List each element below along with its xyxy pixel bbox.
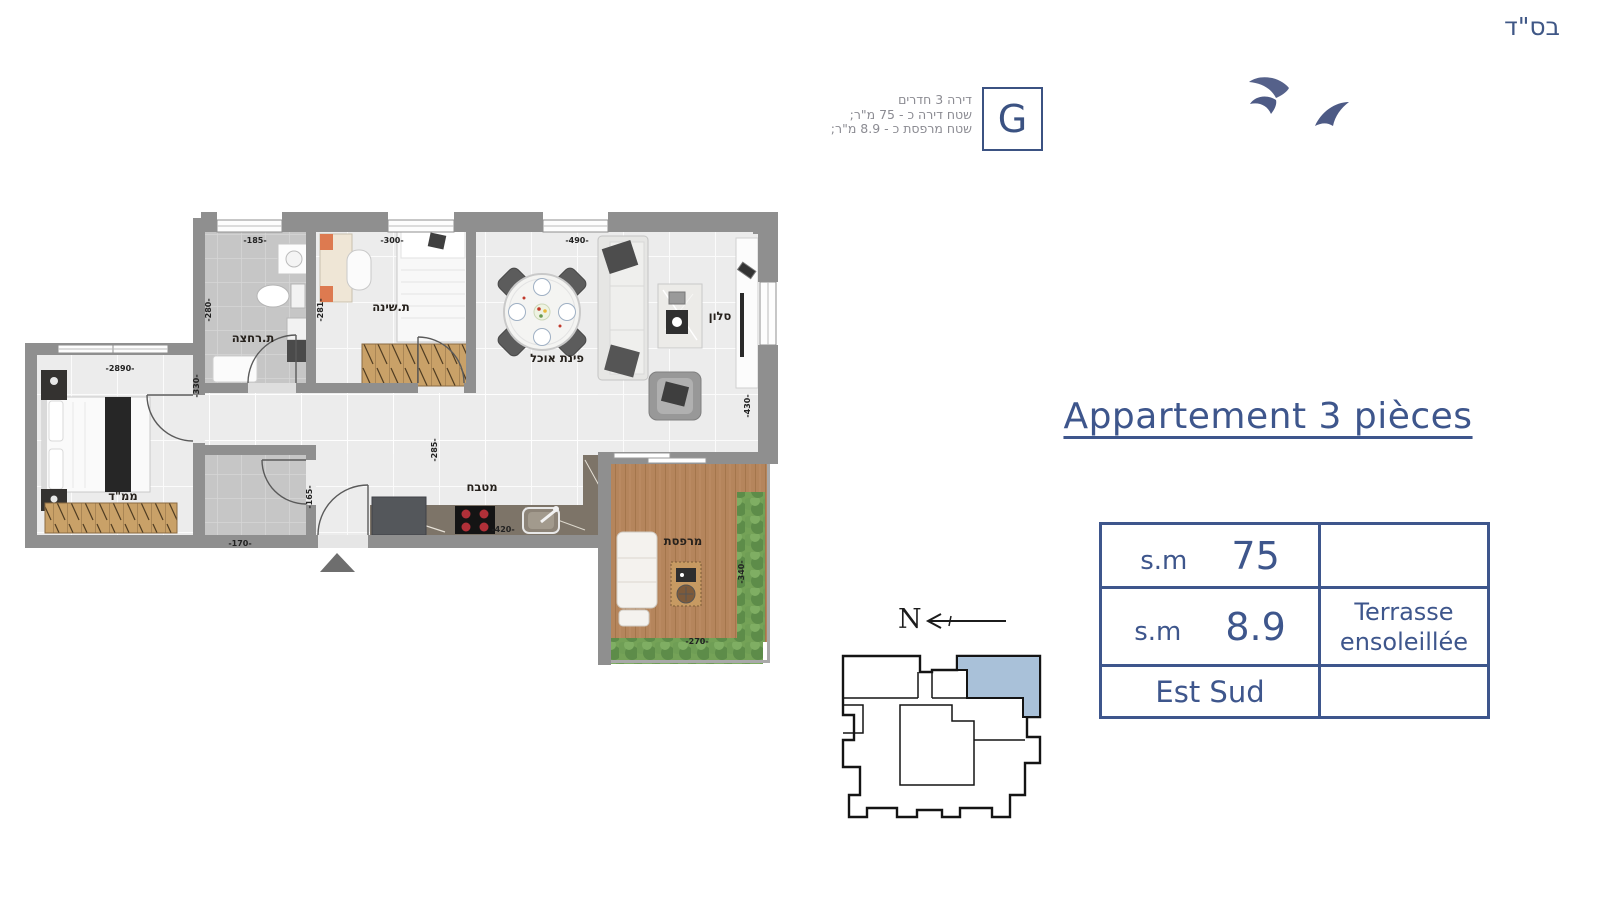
terrace-note-line2: ensoleillée (1321, 627, 1487, 657)
orientation-value: Est Sud (1102, 675, 1318, 709)
window (217, 220, 282, 232)
salon-sofa (598, 236, 648, 380)
refrigerator (372, 497, 426, 535)
window (543, 220, 608, 232)
room-label-kitchen: מטבח (466, 480, 497, 494)
page-title: Appartement 3 pièces (1042, 396, 1494, 437)
room-label-shelter-bedroom: ממ"ד (108, 489, 137, 503)
master-wardrobe (45, 503, 177, 533)
unit-letter: G (998, 97, 1027, 141)
apartment-area-value: 75 (1231, 534, 1279, 578)
room-label-bathroom: ת.רחצה (232, 331, 274, 345)
bird-icon (1250, 97, 1276, 114)
dimension-label: -285- (430, 438, 439, 461)
unit-info-line3: שטח מרפסת כ - 8.9 מ"ר; (790, 122, 972, 137)
tv-console (736, 238, 758, 388)
dimension-label: -170- (228, 539, 251, 548)
master-bed (42, 397, 150, 492)
balcony-area (611, 464, 770, 664)
empty-cell (1320, 666, 1489, 718)
dimension-label: -340- (737, 560, 746, 583)
dimension-label: -165- (305, 485, 314, 508)
entrance-arrow-icon (320, 553, 355, 572)
area-unit: s.m (1140, 546, 1187, 576)
dimension-label: -300- (380, 236, 403, 245)
unit-letter-box: G (982, 87, 1043, 151)
dimension-label: -270- (685, 637, 708, 646)
room-label-balcony: מרפסת (664, 534, 702, 548)
window (58, 345, 168, 353)
table-row: s.m 75 (1101, 524, 1489, 588)
terrace-note-line1: Terrasse (1321, 597, 1487, 627)
dining-set (496, 266, 589, 359)
room-label-bedroom: ת.שינה (372, 300, 409, 314)
table-row: s.m 8.9 Terrasse ensoleillée (1101, 588, 1489, 666)
north-label: N (898, 604, 922, 635)
dimension-label: -430- (743, 394, 752, 417)
dimension-label: -2890- (106, 364, 135, 373)
stove (455, 506, 495, 534)
birds-illustration (1245, 74, 1357, 136)
bird-icon (1315, 102, 1349, 126)
room-label-salon: סלון (709, 309, 732, 323)
dimension-label: -490- (565, 236, 588, 245)
balcony-table (671, 562, 701, 606)
salon-armchair (649, 372, 701, 420)
terrace-area-value: 8.9 (1225, 605, 1285, 649)
page: בס"ד דירה 3 חדרים שטח דירה כ - 75 מ"ר; ש… (0, 0, 1600, 900)
bird-icon (1249, 77, 1289, 98)
north-arrow-icon (920, 610, 1012, 632)
floor-plan: ת.רחצה ת.שינה פינת אוכל סלון מטבח ממ"ד מ… (25, 210, 785, 670)
unit-info-line2: שטח דירה כ - 75 מ"ר; (790, 108, 972, 123)
dimension-label: -185- (243, 236, 266, 245)
area-unit: s.m (1134, 617, 1181, 647)
window (760, 282, 776, 345)
unit-info-block: דירה 3 חדרים שטח דירה כ - 75 מ"ר; שטח מר… (790, 93, 972, 137)
room-label-dining: פינת אוכל (530, 351, 584, 365)
empty-cell (1320, 524, 1489, 588)
spec-table: s.m 75 s.m 8.9 Terrasse ensoleillée (1099, 522, 1490, 719)
key-plan (822, 645, 1047, 840)
dimension-label: -281- (316, 298, 325, 321)
tv-icon (740, 293, 744, 357)
dimension-label: -420- (491, 525, 514, 534)
dimension-label: -330- (192, 374, 201, 397)
table-row: Est Sud (1101, 666, 1489, 718)
kitchen-sink (523, 506, 559, 533)
salon-coffee-table (658, 284, 702, 348)
dimension-label: -280- (204, 298, 213, 321)
window (388, 220, 454, 232)
unit-info-line1: דירה 3 חדרים (790, 93, 972, 108)
bsd-header: בס"ד (1460, 12, 1560, 41)
